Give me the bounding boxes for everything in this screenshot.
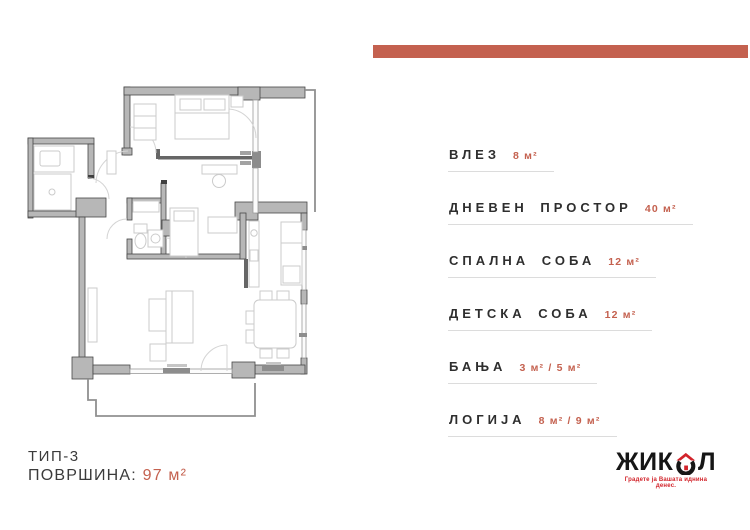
logo-house-icon [675, 451, 697, 475]
room-list: ВЛЕЗ8 м² ДНЕВЕН ПРОСТОР40 м² СПАЛНА СОБА… [448, 146, 693, 464]
logo-tagline: Градете ја Вашата иднина денес. [616, 477, 716, 489]
total-area-line: ПОВРШИНА: 97 м² [28, 467, 187, 485]
room-row-banja: БАЊА3 м² / 5 м² [448, 358, 597, 384]
room-name: ДНЕВЕН ПРОСТОР [449, 200, 632, 215]
room-name: СПАЛНА СОБА [449, 253, 595, 268]
room-area: 8 м² [513, 150, 538, 162]
room-row-vlez: ВЛЕЗ8 м² [448, 146, 554, 172]
room-area: 3 м² / 5 м² [519, 362, 581, 374]
logo-text-prefix: ЖИК [616, 450, 673, 475]
room-row-dneven-prostor: ДНЕВЕН ПРОСТОР40 м² [448, 199, 693, 225]
logo-text-suffix: Л [698, 450, 716, 475]
area-value: 97 м² [143, 467, 188, 484]
room-area: 12 м² [608, 256, 640, 268]
room-area: 12 м² [605, 309, 637, 321]
room-name: ВЛЕЗ [449, 147, 500, 162]
room-name: БАЊА [449, 359, 506, 374]
room-name: ЛОГИЈА [449, 412, 526, 427]
zhikol-logo: ЖИК Л Градете ја Вашата иднина денес. [616, 450, 716, 489]
plan-summary: ТИП-3 ПОВРШИНА: 97 м² [28, 448, 187, 485]
room-row-spalna-soba: СПАЛНА СОБА12 м² [448, 252, 656, 278]
room-row-detska-soba: ДЕТСКА СОБА12 м² [448, 305, 652, 331]
room-name: ДЕТСКА СОБА [449, 306, 592, 321]
logo-wordmark: ЖИК Л [616, 450, 716, 475]
area-label: ПОВРШИНА: [28, 467, 137, 484]
room-area: 40 м² [645, 203, 677, 215]
room-area: 8 м² / 9 м² [539, 415, 601, 427]
type-label: ТИП-3 [28, 448, 187, 465]
room-row-logija: ЛОГИЈА8 м² / 9 м² [448, 411, 617, 437]
